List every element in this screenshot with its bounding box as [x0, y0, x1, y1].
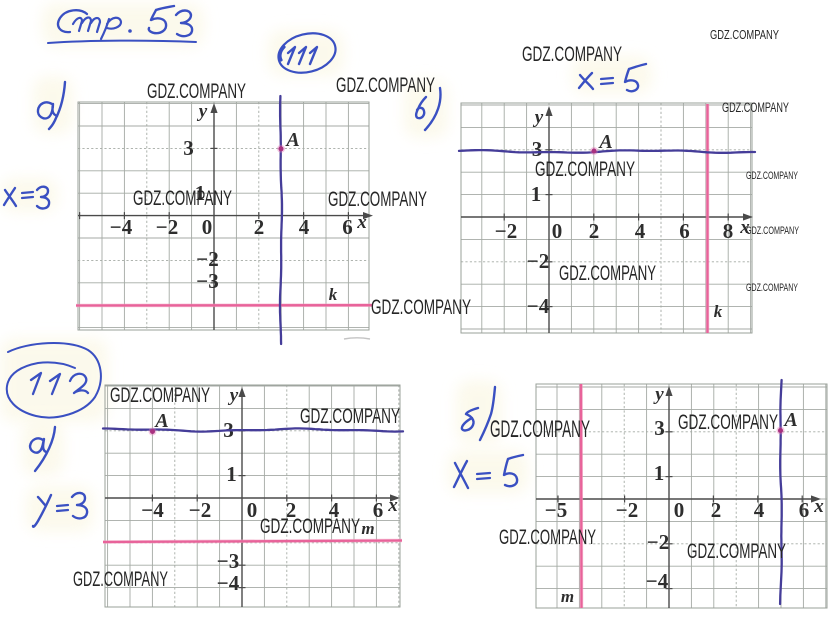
svg-text:GDZ.COMPANY: GDZ.COMPANY [133, 187, 232, 210]
svg-text:−2: −2 [495, 219, 517, 243]
svg-text:4: 4 [299, 215, 310, 239]
svg-text:4: 4 [754, 498, 765, 522]
svg-text:GDZ.COMPANY: GDZ.COMPANY [746, 225, 799, 237]
svg-text:−2: −2 [196, 247, 218, 271]
svg-text:3: 3 [183, 136, 194, 160]
svg-text:−4: −4 [527, 294, 550, 318]
svg-text:GDZ.COMPANY: GDZ.COMPANY [746, 282, 798, 294]
svg-text:k: k [714, 302, 723, 321]
svg-text:−2: −2 [156, 215, 178, 239]
svg-text:2: 2 [589, 219, 600, 243]
svg-text:GDZ.COMPANY: GDZ.COMPANY [710, 27, 779, 42]
svg-text:A: A [597, 131, 612, 153]
svg-text:0: 0 [247, 498, 258, 522]
svg-text:GDZ.COMPANY: GDZ.COMPANY [522, 43, 622, 66]
svg-text:0: 0 [202, 215, 213, 239]
svg-text:GDZ.COMPANY: GDZ.COMPANY [499, 526, 596, 549]
svg-text:−2: −2 [616, 498, 638, 522]
svg-text:−4: −4 [110, 215, 133, 239]
svg-text:GDZ.COMPANY: GDZ.COMPANY [260, 515, 360, 538]
svg-text:GDZ.COMPANY: GDZ.COMPANY [73, 568, 168, 591]
svg-text:6: 6 [799, 498, 810, 522]
svg-text:−3: −3 [196, 269, 218, 293]
svg-text:GDZ.COMPANY: GDZ.COMPANY [371, 296, 471, 319]
svg-text:−2: −2 [527, 249, 549, 273]
svg-text:y: y [653, 384, 664, 405]
svg-text:1: 1 [654, 461, 665, 485]
svg-text:GDZ.COMPANY: GDZ.COMPANY [559, 262, 656, 285]
svg-text:GDZ.COMPANY: GDZ.COMPANY [336, 74, 435, 97]
svg-text:A: A [153, 410, 168, 432]
svg-text:−4: −4 [646, 569, 669, 593]
svg-text:−2: −2 [189, 498, 211, 522]
svg-text:−3: −3 [217, 549, 239, 573]
svg-text:3: 3 [654, 416, 665, 440]
svg-text:GDZ.COMPANY: GDZ.COMPANY [300, 405, 400, 428]
svg-text:−2: −2 [647, 530, 669, 554]
svg-text:GDZ.COMPANY: GDZ.COMPANY [722, 99, 789, 115]
svg-text:−4: −4 [141, 498, 164, 522]
svg-text:GDZ.COMPANY: GDZ.COMPANY [687, 540, 786, 563]
svg-text:GDZ.COMPANY: GDZ.COMPANY [535, 158, 635, 181]
svg-text:−5: −5 [545, 498, 567, 522]
svg-text:0: 0 [674, 498, 685, 522]
svg-text:4: 4 [635, 219, 646, 243]
svg-text:2: 2 [254, 215, 265, 239]
svg-text:x: x [813, 496, 824, 517]
svg-text:x: x [387, 495, 398, 516]
svg-text:GDZ.COMPANY: GDZ.COMPANY [110, 384, 210, 407]
svg-text:−4: −4 [217, 571, 240, 595]
svg-text:A: A [782, 409, 797, 431]
svg-text:1: 1 [226, 462, 237, 486]
svg-text:2: 2 [711, 498, 722, 522]
svg-text:0: 0 [552, 219, 563, 243]
svg-text:x: x [356, 212, 367, 233]
svg-text:y: y [197, 101, 208, 122]
svg-text:GDZ.COMPANY: GDZ.COMPANY [490, 416, 590, 443]
svg-text:8: 8 [723, 219, 734, 243]
svg-text:GDZ.COMPANY: GDZ.COMPANY [678, 411, 778, 434]
svg-text:GDZ.COMPANY: GDZ.COMPANY [147, 80, 246, 103]
svg-text:y: y [533, 107, 544, 128]
svg-text:6: 6 [679, 219, 690, 243]
svg-text:A: A [284, 129, 299, 151]
svg-text:GDZ.COMPANY: GDZ.COMPANY [746, 170, 798, 182]
svg-text:1: 1 [531, 182, 542, 206]
svg-text:6: 6 [342, 215, 353, 239]
svg-text:y: y [228, 385, 239, 406]
svg-text:m: m [561, 587, 574, 606]
svg-text:m: m [361, 519, 374, 538]
svg-text:k: k [329, 285, 338, 304]
svg-text:GDZ.COMPANY: GDZ.COMPANY [328, 188, 427, 211]
